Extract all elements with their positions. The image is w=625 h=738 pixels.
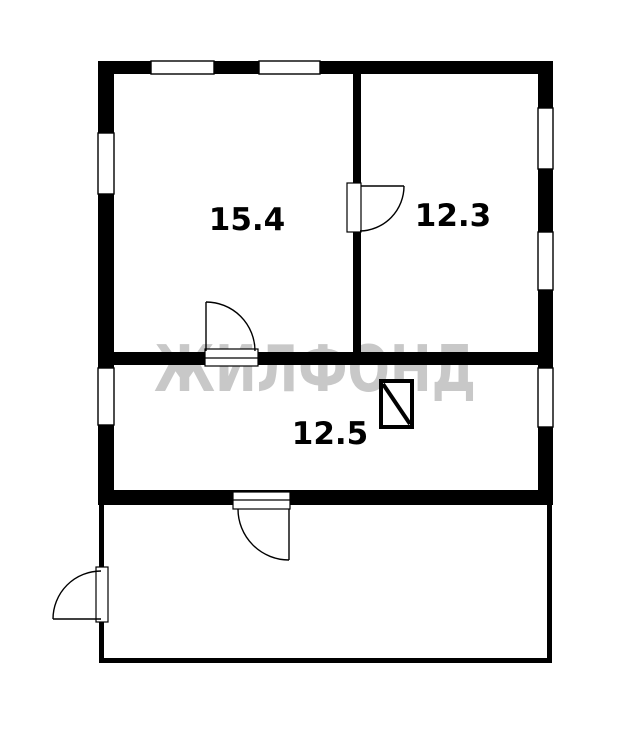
window-left-2 [98,368,114,425]
window-right-2 [538,232,553,290]
floor-plan-svg: ЖИЛФОНД [0,0,625,738]
stove-symbol [381,381,412,427]
door-opening-interior [347,183,361,232]
window-top-1 [151,61,214,74]
room-area-label-1: 15.4 [209,202,286,238]
room-area-label-2: 12.3 [415,198,492,234]
floor-plan-page: ЖИЛФОНД [0,0,625,738]
door-arc-porch [53,571,101,619]
window-right-1 [538,108,553,169]
walls [98,61,553,663]
porch-wall-bottom [99,658,552,663]
door-arc-interior [360,186,404,231]
door-arc-bottom [238,509,289,560]
window-left-1 [98,133,114,194]
porch-wall-right [547,505,552,663]
wall-bottom-main [98,490,553,505]
wall-middle-horizontal [98,352,553,365]
watermark-text: ЖИЛФОНД [154,333,476,407]
room-area-label-3: 12.5 [292,416,369,452]
wall-left [98,61,114,505]
window-top-2 [259,61,320,74]
window-right-3 [538,368,553,427]
door-opening-porch [96,567,108,622]
